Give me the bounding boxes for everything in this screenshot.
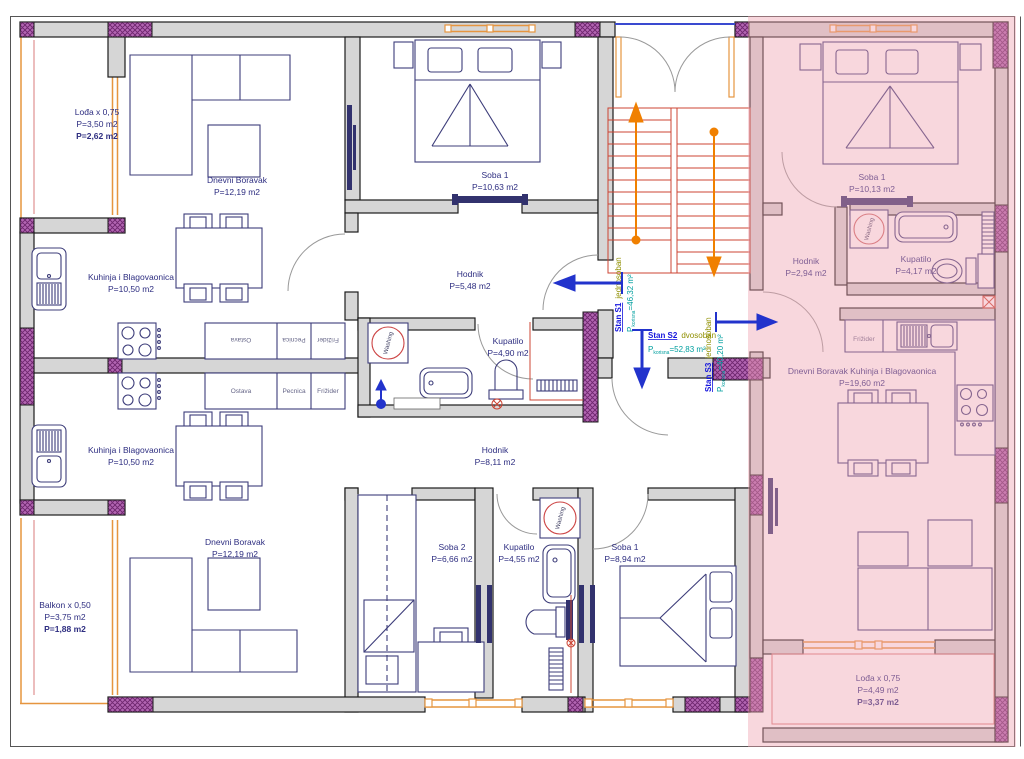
stan-s1-entry-arrow xyxy=(554,272,622,294)
room-label-kupatilo-bottom: Kupatilo P=4,55 m2 xyxy=(498,542,540,564)
svg-text:Balkon x 0,50: Balkon x 0,50 xyxy=(39,600,91,610)
s2-stove xyxy=(118,373,160,409)
room-label-kuhinja-bottom: Kuhinja i Blagovaonica P=10,50 m2 xyxy=(88,445,174,467)
floor-plan-drawing: Lođa x 0,75 P=3,50 m2 P=2,62 m2 Dnevni B… xyxy=(0,0,1024,759)
room-label-dnevni-top: Dnevni Boravak P=12,19 m2 xyxy=(207,175,268,197)
room-label-kuhinja-top: Kuhinja i Blagovaonica P=10,50 m2 xyxy=(88,272,174,294)
svg-text:Ostava: Ostava xyxy=(231,388,252,395)
room-label-soba1-top: Soba 1 P=10,63 m2 xyxy=(472,170,518,192)
room-label-loda-top: Lođa x 0,75 P=3,50 m2 P=2,62 m2 xyxy=(75,107,120,141)
svg-text:P=10,50 m2: P=10,50 m2 xyxy=(108,284,154,294)
room-label-balkon: Balkon x 0,50 P=3,75 m2 P=1,88 m2 xyxy=(39,600,91,634)
svg-text:Frižider: Frižider xyxy=(316,336,339,343)
svg-text:P=10,50 m2: P=10,50 m2 xyxy=(108,457,154,467)
staircase xyxy=(608,103,750,276)
svg-text:P=5,48 m2: P=5,48 m2 xyxy=(449,281,491,291)
s1-dining-set xyxy=(176,214,262,302)
svg-text:Soba 2: Soba 2 xyxy=(439,542,466,552)
s2-dining-set xyxy=(176,412,262,500)
floor-plan-page: Lođa x 0,75 P=3,50 m2 P=2,62 m2 Dnevni B… xyxy=(0,0,1024,759)
room-label-hodnik-bottom: Hodnik P=8,11 m2 xyxy=(475,445,516,467)
svg-text:Dnevni Boravak: Dnevni Boravak xyxy=(205,537,266,547)
room-label-soba1-bottom: Soba 1 P=8,94 m2 xyxy=(604,542,646,564)
svg-text:Kupatilo: Kupatilo xyxy=(493,336,524,346)
svg-text:P=3,75 m2: P=3,75 m2 xyxy=(44,612,86,622)
kitchen-counter-labels-top: Ostava Pecnica Frižider xyxy=(230,336,339,343)
svg-text:Kuhinja i Blagovaonica: Kuhinja i Blagovaonica xyxy=(88,272,174,282)
svg-text:Frižider: Frižider xyxy=(317,388,340,395)
s1-bathroom xyxy=(368,322,583,409)
svg-text:P=8,94 m2: P=8,94 m2 xyxy=(604,554,646,564)
stan-s3-highlight-overlay xyxy=(748,16,1016,747)
svg-text:Pkorisna=52,83 m²: Pkorisna=52,83 m² xyxy=(648,345,706,356)
svg-text:P=1,88 m2: P=1,88 m2 xyxy=(44,624,86,634)
svg-text:P=10,63 m2: P=10,63 m2 xyxy=(472,182,518,192)
room-label-hodnik-top: Hodnik P=5,48 m2 xyxy=(449,269,491,291)
room-label-kupatilo-top: Kupatilo P=4,90 m2 xyxy=(487,336,529,358)
stair-down-arrow xyxy=(707,128,721,276)
s2-soba1-bed xyxy=(620,566,736,666)
svg-text:P=4,90 m2: P=4,90 m2 xyxy=(487,348,529,358)
svg-text:Dnevni Boravak: Dnevni Boravak xyxy=(207,175,268,185)
svg-text:Pecnica: Pecnica xyxy=(282,388,306,395)
svg-text:P=4,55 m2: P=4,55 m2 xyxy=(498,554,540,564)
svg-text:P=6,66 m2: P=6,66 m2 xyxy=(431,554,473,564)
svg-text:Stan S2dvosoban: Stan S2dvosoban xyxy=(648,331,716,340)
s1-sliding-door xyxy=(452,194,528,205)
s2-soba2-bed xyxy=(358,495,416,692)
svg-text:P=8,11 m2: P=8,11 m2 xyxy=(475,457,516,467)
s1-side-table xyxy=(208,125,260,177)
s2-bathroom xyxy=(526,498,580,693)
svg-text:Soba 1: Soba 1 xyxy=(612,542,639,552)
svg-text:Pkorisna=46,32 m²: Pkorisna=46,32 m² xyxy=(626,274,637,332)
svg-text:P=12,19 m2: P=12,19 m2 xyxy=(212,549,258,559)
svg-text:Stan S1jednosoban: Stan S1jednosoban xyxy=(614,257,623,332)
s1-bed xyxy=(394,40,561,162)
room-label-soba2-bottom: Soba 2 P=6,66 m2 xyxy=(431,542,473,564)
s2-kitchen-sink xyxy=(32,425,66,487)
kitchen-counter-labels-bottom: Ostava Pecnica Frižider xyxy=(231,388,340,395)
svg-text:P=2,62 m2: P=2,62 m2 xyxy=(76,131,118,141)
s2-side-table xyxy=(208,558,260,610)
stair-up-arrow xyxy=(629,103,643,244)
svg-text:Soba 1: Soba 1 xyxy=(482,170,509,180)
svg-text:Hodnik: Hodnik xyxy=(482,445,509,455)
s1-kitchen-sink xyxy=(32,248,66,310)
svg-text:Stan S3jednosoban: Stan S3jednosoban xyxy=(704,317,713,392)
svg-text:Hodnik: Hodnik xyxy=(457,269,484,279)
svg-text:Ostava: Ostava xyxy=(230,336,251,343)
s2-desk xyxy=(418,628,484,692)
room-label-dnevni-bottom: Dnevni Boravak P=12,19 m2 xyxy=(205,537,266,559)
svg-text:Lođa x 0,75: Lođa x 0,75 xyxy=(75,107,120,117)
svg-text:P=12,19 m2: P=12,19 m2 xyxy=(214,187,260,197)
svg-text:Kupatilo: Kupatilo xyxy=(504,542,535,552)
svg-text:Pecnica: Pecnica xyxy=(282,336,306,343)
svg-text:P=3,50 m2: P=3,50 m2 xyxy=(76,119,118,129)
s1-stove xyxy=(118,323,160,359)
svg-text:Kuhinja i Blagovaonica: Kuhinja i Blagovaonica xyxy=(88,445,174,455)
